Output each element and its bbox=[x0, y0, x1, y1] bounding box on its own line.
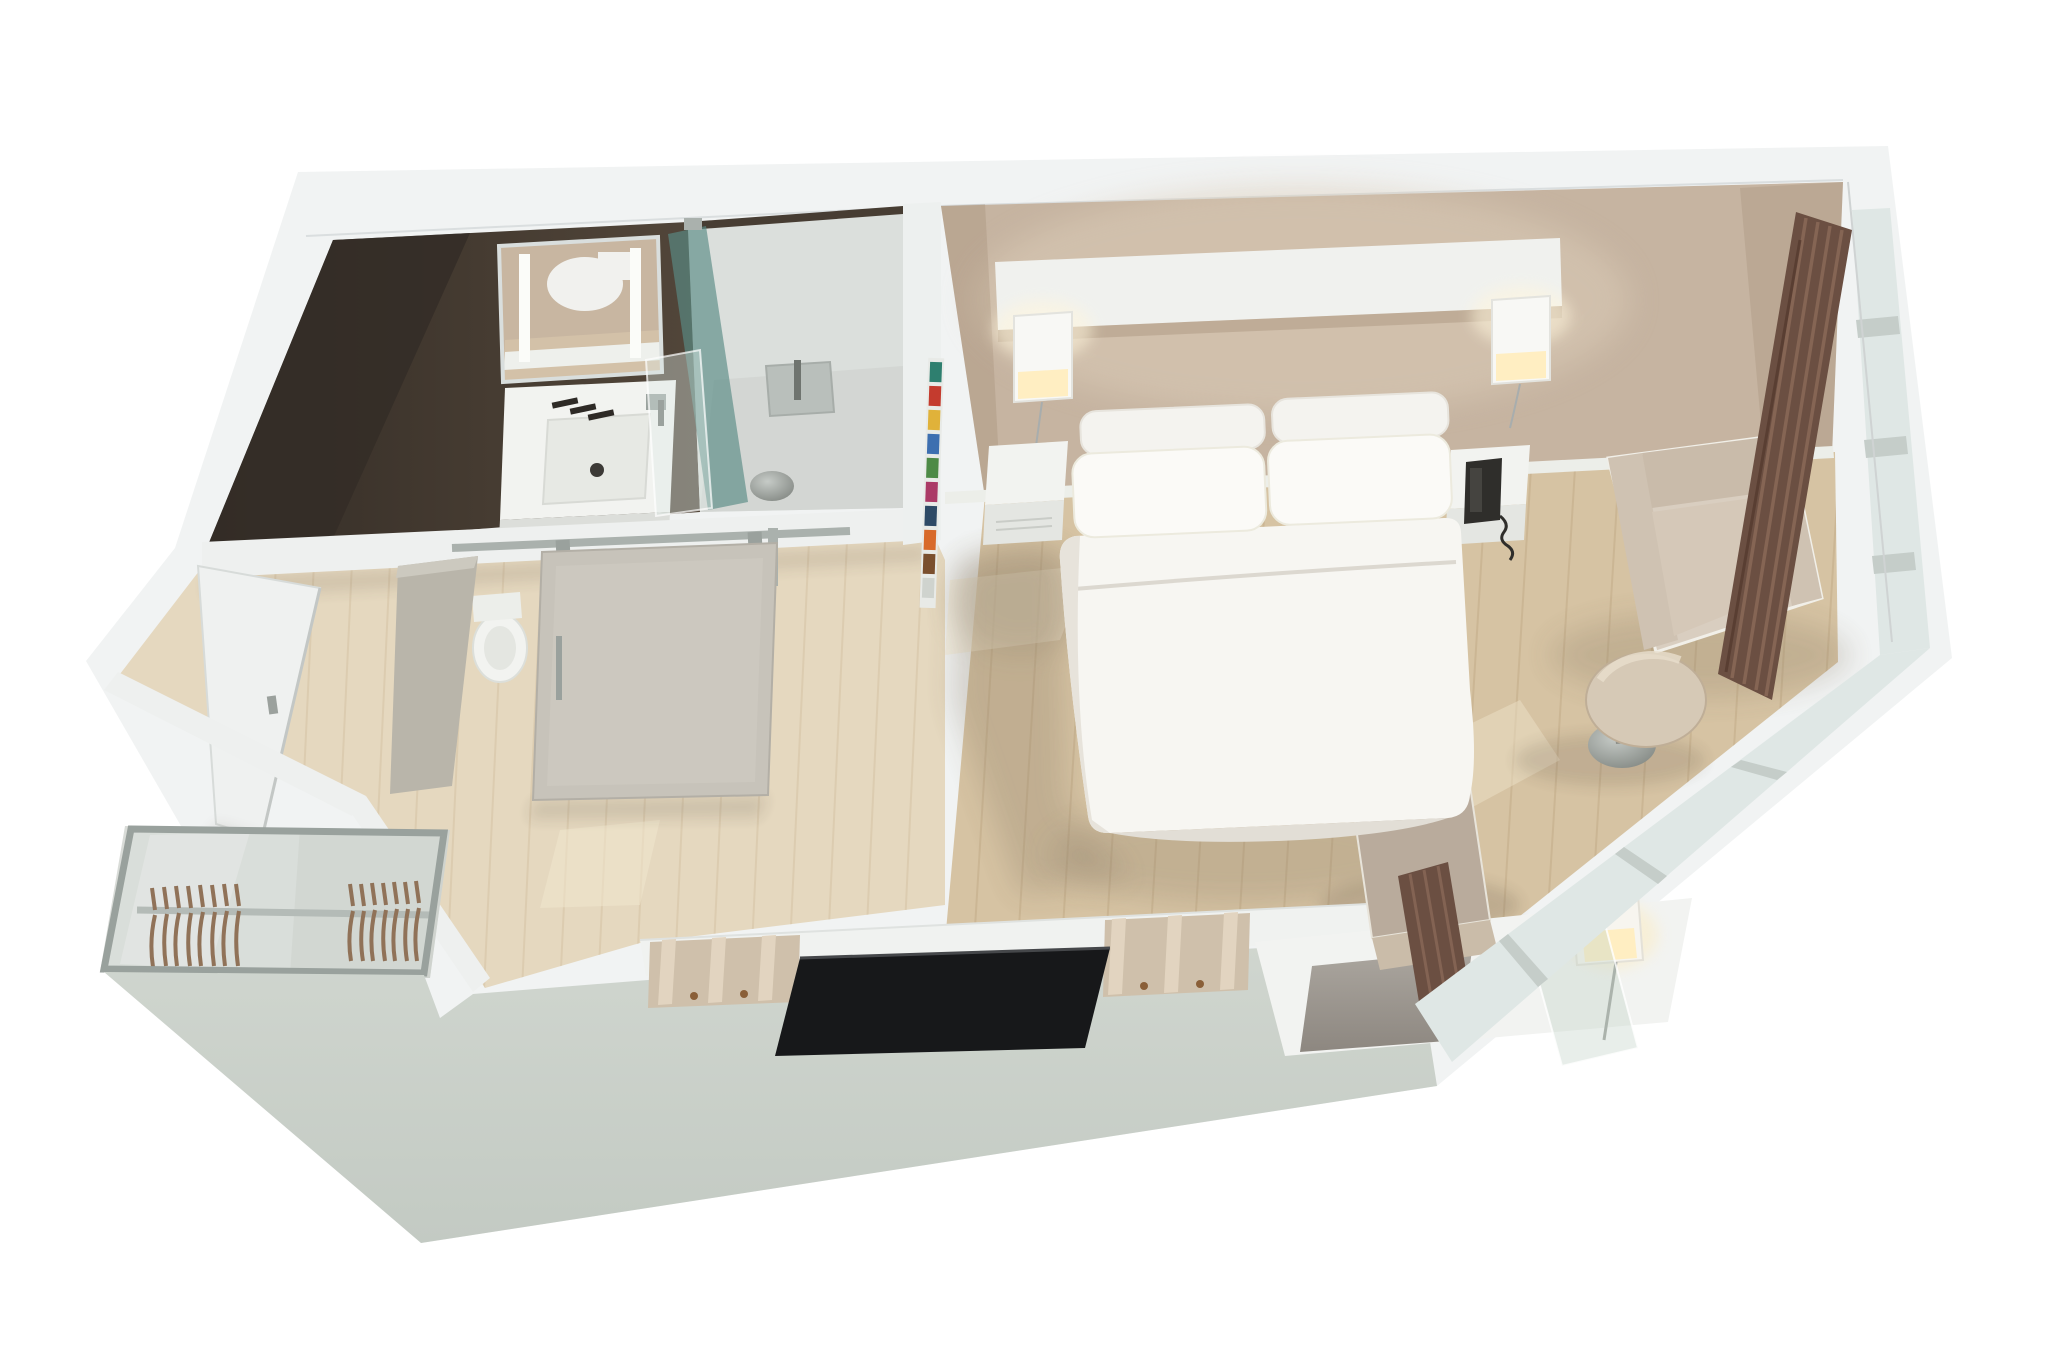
magazine bbox=[929, 362, 942, 382]
table-top bbox=[1586, 653, 1706, 747]
toilet-seat bbox=[484, 626, 516, 670]
knob bbox=[690, 992, 698, 1000]
mirror-light-strip-left bbox=[519, 254, 530, 362]
mirror-light-strip-right bbox=[630, 248, 641, 358]
lamp-right-inner-glow bbox=[1496, 351, 1546, 381]
magazine bbox=[929, 386, 942, 406]
sink-drain bbox=[590, 463, 604, 477]
magazine bbox=[925, 482, 938, 502]
magazine bbox=[926, 458, 939, 478]
magazine bbox=[927, 434, 940, 454]
glass-clamp bbox=[684, 218, 702, 230]
walk-in-shower bbox=[646, 214, 903, 516]
floorplan-render bbox=[0, 0, 2048, 1365]
magazine bbox=[922, 578, 935, 598]
lamp-left-inner-glow bbox=[1018, 369, 1068, 399]
magazine bbox=[924, 530, 937, 550]
pillow-front-left bbox=[1072, 446, 1267, 538]
magazine bbox=[924, 506, 937, 526]
tv bbox=[775, 948, 1110, 1056]
floor-drain bbox=[750, 471, 794, 501]
mirror bbox=[499, 237, 662, 382]
closet-mirror-frame bbox=[104, 829, 444, 973]
mirror-reflection-toilet-tank bbox=[598, 252, 634, 280]
frosted-door-inner bbox=[547, 558, 763, 786]
glass-door-handle bbox=[658, 400, 664, 426]
floorplan-svg bbox=[0, 0, 2048, 1365]
floating-nightstand-left bbox=[983, 441, 1068, 545]
pillow-front-right bbox=[1267, 434, 1452, 526]
telephone bbox=[1464, 458, 1502, 524]
shower-head-handle bbox=[794, 360, 801, 400]
console-compartments-right bbox=[1103, 912, 1250, 997]
console-compartments-left bbox=[648, 935, 800, 1008]
knob bbox=[1140, 982, 1148, 990]
nightstand-front bbox=[983, 500, 1064, 545]
magazine bbox=[923, 554, 936, 574]
sliding-door-handle bbox=[556, 636, 562, 700]
toilet-tank bbox=[472, 592, 522, 622]
knob bbox=[1196, 980, 1204, 988]
nightstand-top bbox=[985, 441, 1068, 505]
knob bbox=[740, 990, 748, 998]
magazine bbox=[928, 410, 941, 430]
clear-glass-panel bbox=[646, 350, 712, 516]
sink-basin bbox=[543, 414, 650, 504]
pillows bbox=[1070, 392, 1453, 538]
telephone-handset bbox=[1470, 468, 1482, 512]
